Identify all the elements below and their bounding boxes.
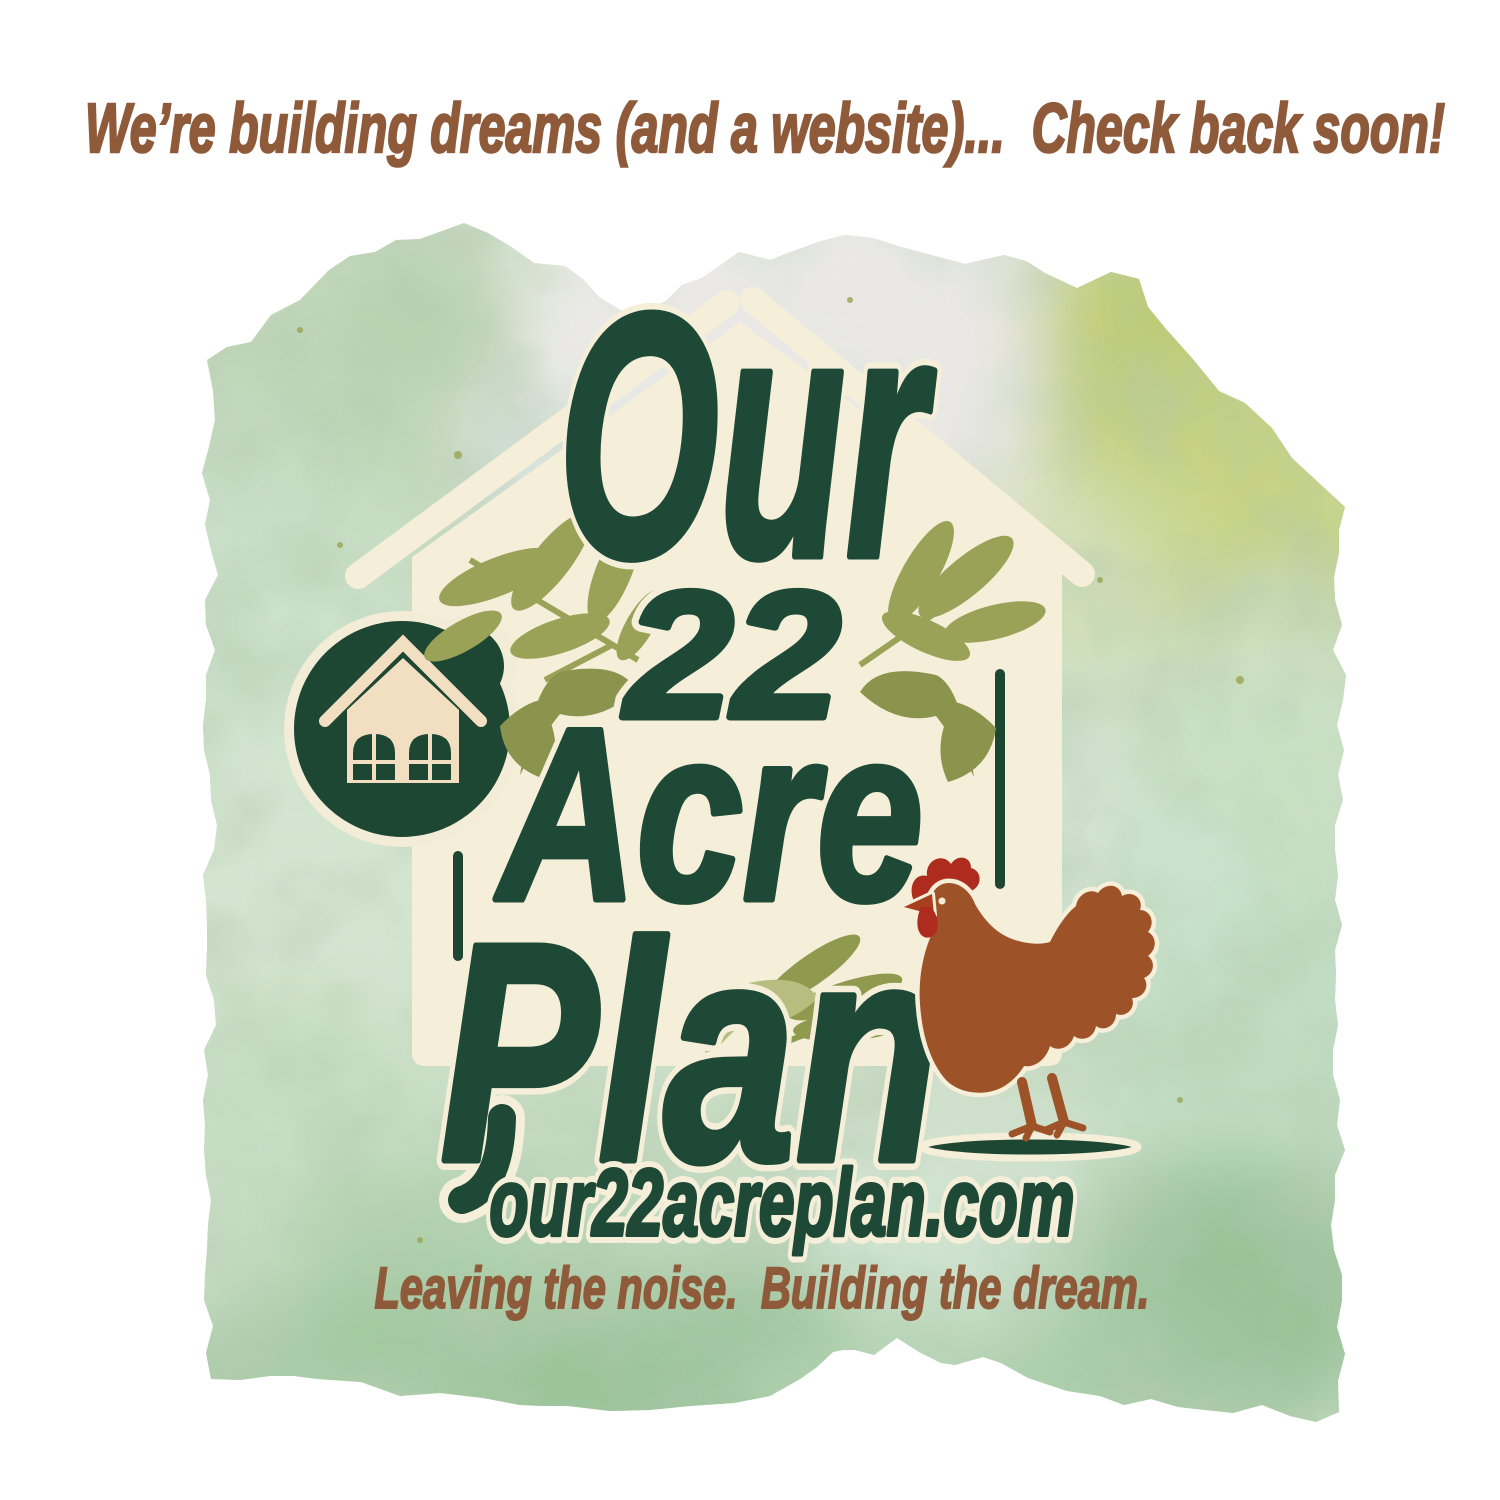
svg-text:Leaving the noise. Building t: Leaving the noise. Building the dream. xyxy=(375,1256,1150,1321)
svg-text:our22acreplan.com: our22acreplan.com xyxy=(490,1150,1075,1256)
svg-text:We’re building dreams (and a w: We’re building dreams (and a website)...… xyxy=(85,89,1445,167)
